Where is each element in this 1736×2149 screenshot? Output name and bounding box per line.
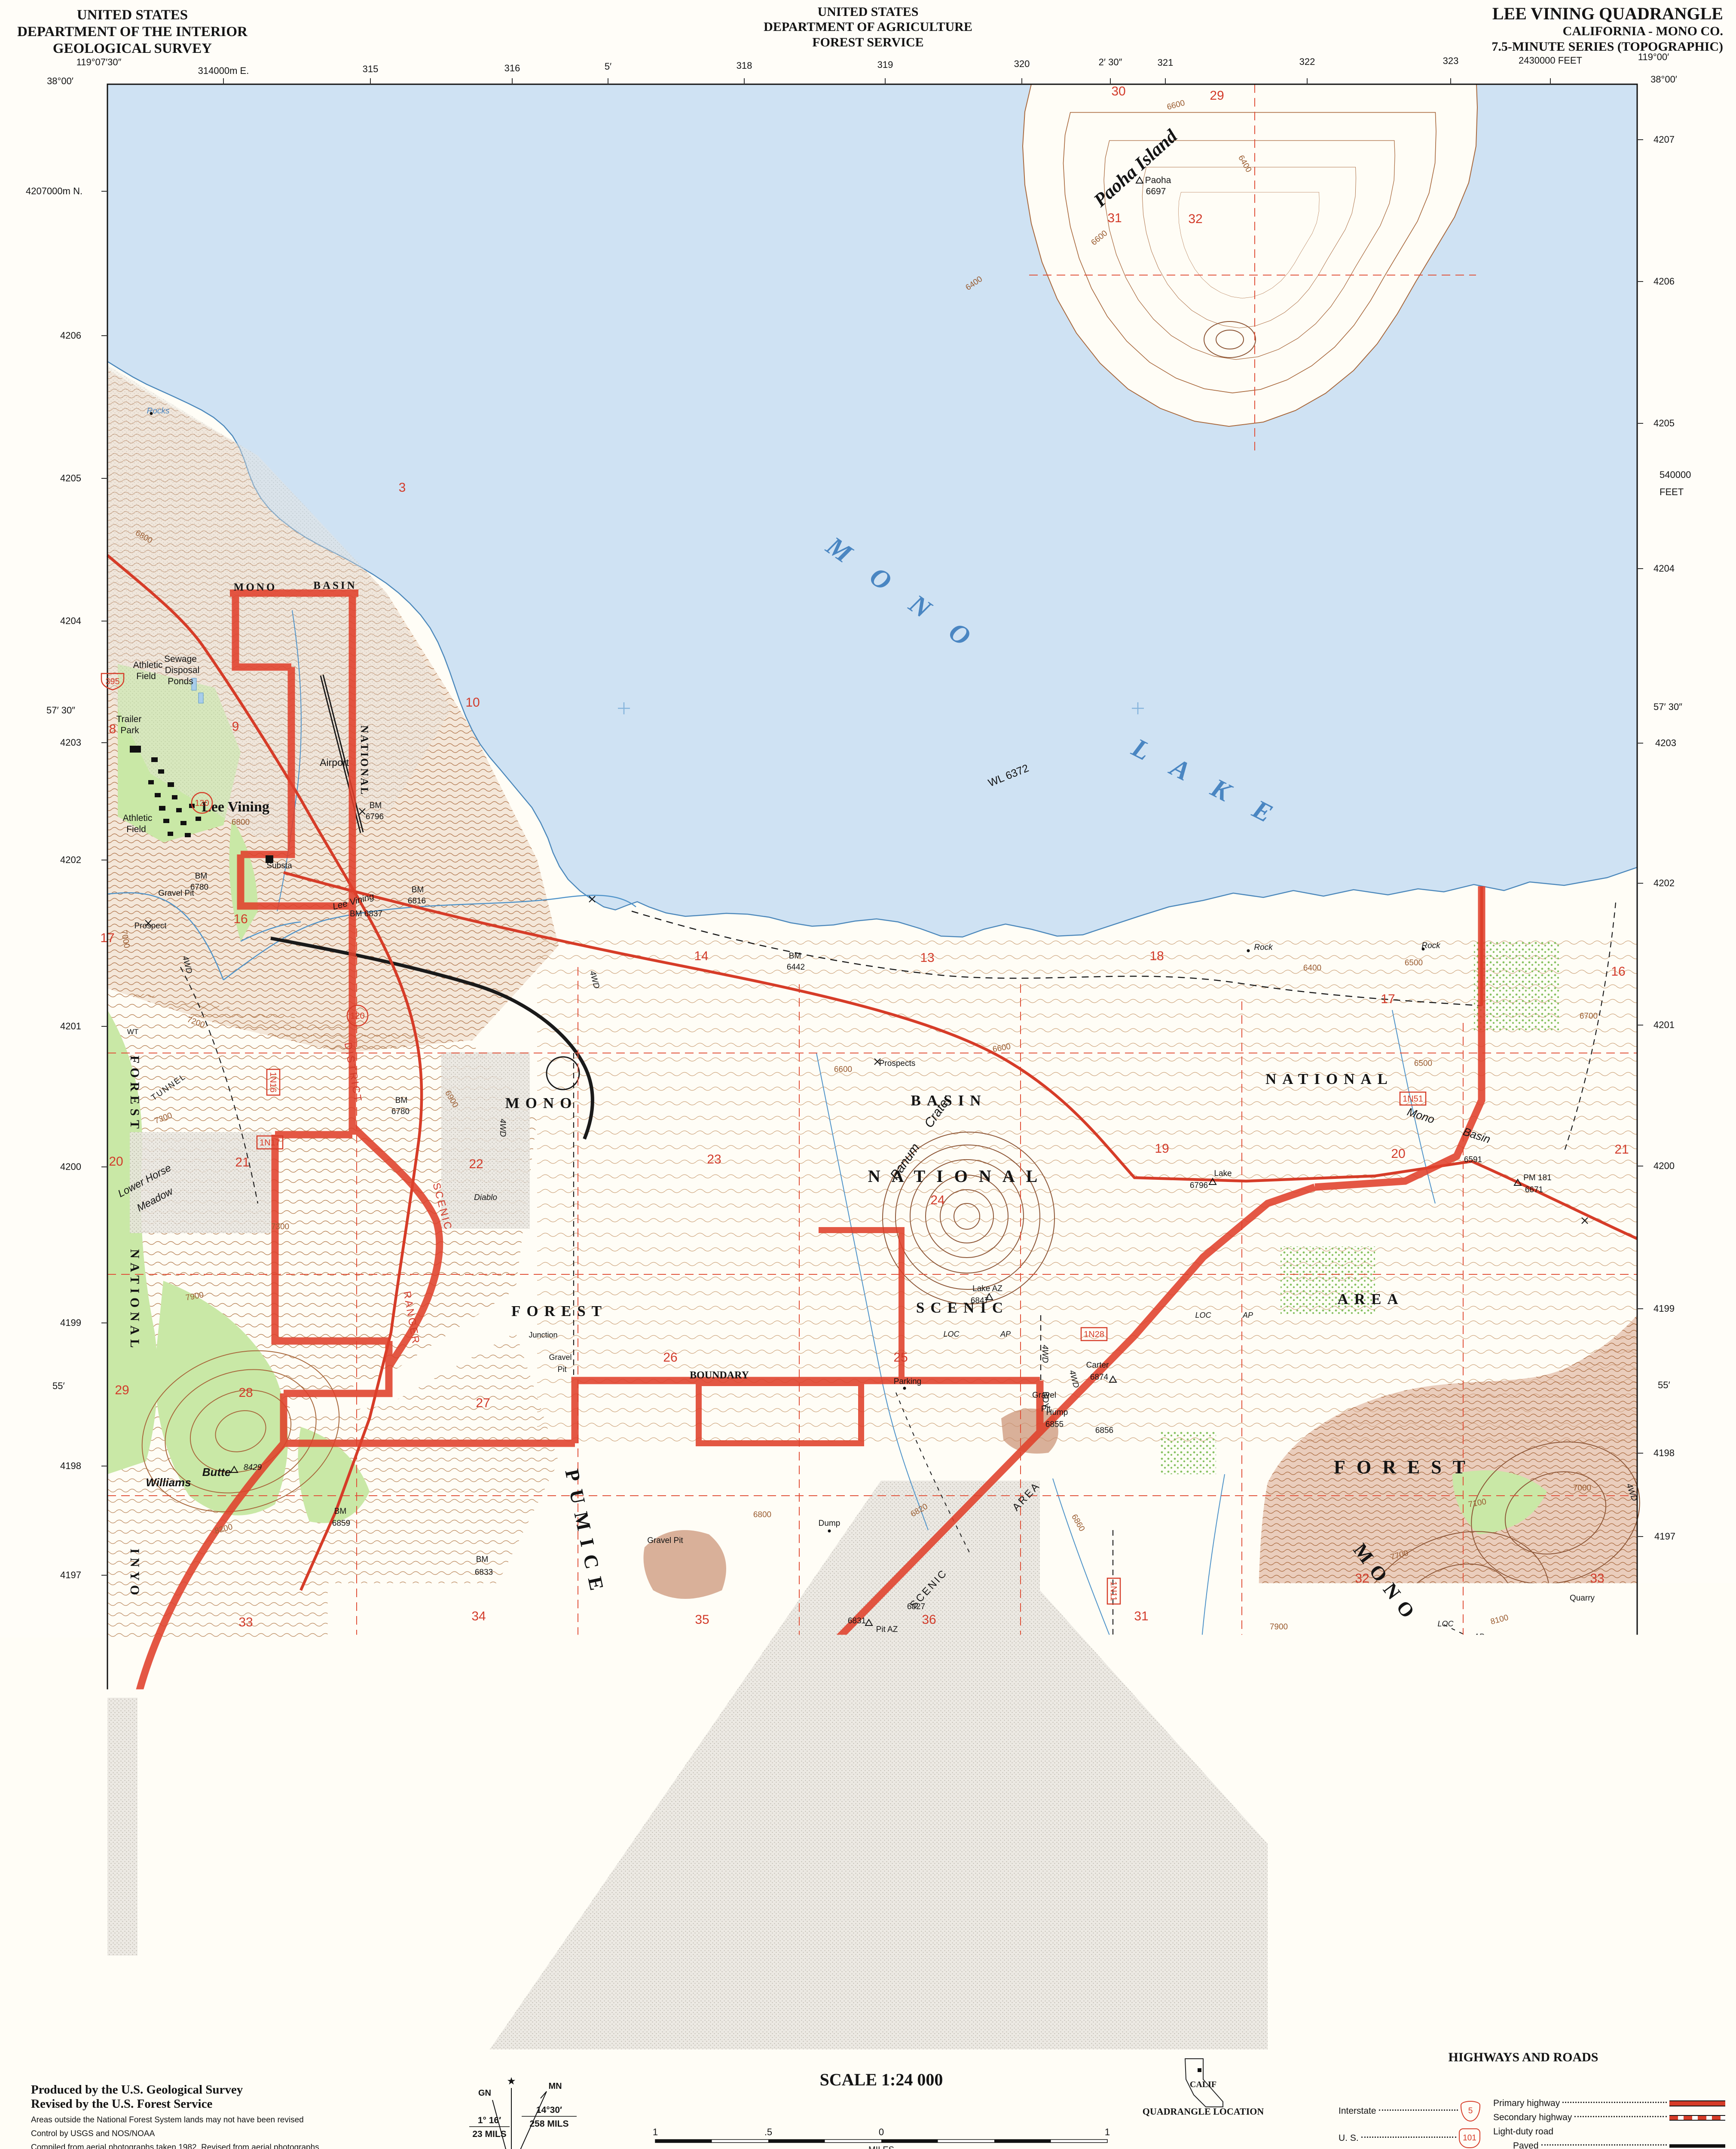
legend-leader-icon xyxy=(1562,2101,1667,2103)
label-ap: AP xyxy=(1242,1311,1253,1319)
label-4201: 4201 xyxy=(1653,1019,1675,1030)
label-7300: 7300 xyxy=(271,1222,289,1231)
spot-dot-icon xyxy=(828,1530,831,1533)
label-318: 318 xyxy=(737,60,752,71)
roads-legend: HIGHWAYS AND ROADS Interstate5U. S.101St… xyxy=(1321,2050,1725,2149)
label-scale-1-24-000: SCALE 1:24 000 xyxy=(820,2070,943,2089)
label-21: 21 xyxy=(1614,1142,1629,1157)
label-junction: Junction xyxy=(529,1331,557,1339)
quadrangle-location: CALIFQUADRANGLE LOCATION xyxy=(1143,2059,1264,2117)
label-loc: LOC xyxy=(943,1330,960,1338)
label-feet: FEET xyxy=(1660,487,1684,497)
label-field: Field xyxy=(126,824,146,834)
route-shield-1n17: 1N17 xyxy=(257,1136,283,1149)
label-35: 35 xyxy=(695,1613,709,1627)
label-diablo: Diablo xyxy=(474,1193,497,1202)
label-athletic: Athletic xyxy=(133,660,163,670)
label-4wd: 4WD xyxy=(498,1119,507,1137)
label-wt: WT xyxy=(127,1028,138,1036)
legend-row-u-s: U. S.101 xyxy=(1339,2128,1480,2148)
legend-leader-icon xyxy=(1574,2115,1667,2117)
label-2-30: 2′ 30″ xyxy=(1124,2049,1147,2060)
legend-label: Secondary highway xyxy=(1493,2112,1572,2123)
label-bm: BM xyxy=(195,872,208,881)
label-mn: MN xyxy=(548,2082,562,2091)
label-14: 14 xyxy=(694,949,708,963)
label-t-1-n: T. 1 N. xyxy=(56,1709,83,1720)
label-ap: AP xyxy=(1473,1632,1484,1641)
label-sewage-disposal: Sewage Disposal xyxy=(526,1996,590,2005)
label-airport: Airport xyxy=(320,757,349,768)
label-forest: FOREST xyxy=(128,1056,142,1133)
route-shield-1n11: 1N11 xyxy=(1107,1578,1120,1604)
route-number: 1N28 xyxy=(1084,1330,1104,1339)
label-4200: 4200 xyxy=(1653,1160,1675,1171)
label-18: 18 xyxy=(1149,949,1164,963)
legend-title: HIGHWAYS AND ROADS xyxy=(1321,2050,1725,2065)
label-23-mils: 23 MILS xyxy=(472,2129,506,2139)
label-r-26-e: R. 26 E. xyxy=(1017,2033,1048,2042)
label-6835: 6835 xyxy=(746,1666,764,1675)
label-5: .5 xyxy=(764,2127,772,2137)
label-4204: 4204 xyxy=(60,615,81,626)
label-4200: 4200 xyxy=(60,1161,81,1172)
label-6780: 6780 xyxy=(190,883,208,892)
label-r-27-e: R. 27 E. xyxy=(1064,2033,1095,2042)
label-37-52-30: 37°52′ 30″ xyxy=(46,2051,89,2062)
label-lake-az: Lake AZ xyxy=(972,1284,1002,1293)
label-isbn-0-607-88156-9: ISBN 0-607-88156-9 xyxy=(1724,1807,1733,1878)
label-9: 9 xyxy=(252,1989,259,2003)
label-6500: 6500 xyxy=(1414,1059,1432,1068)
label-prospects: Prospects xyxy=(879,1059,915,1068)
label-6697: 6697 xyxy=(1146,187,1166,196)
credit-line: Revised by the U.S. Forest Service xyxy=(31,2097,469,2111)
label-6831: 6831 xyxy=(848,1616,866,1626)
label-forest: FOREST xyxy=(1334,1457,1476,1478)
label-6874: 6874 xyxy=(1090,1373,1109,1382)
label-27: 27 xyxy=(476,1396,490,1410)
label-119-07-30: 119°07′ 30″ xyxy=(95,2068,143,2079)
label-calif: CALIF xyxy=(1190,2080,1216,2089)
label-field: Field xyxy=(136,671,156,681)
label-6442: 6442 xyxy=(787,963,805,972)
label-substa: Substa xyxy=(266,861,292,870)
label-26: 26 xyxy=(663,1350,677,1365)
label-ap: AP xyxy=(1623,1687,1634,1695)
spot-dot-icon xyxy=(150,412,153,415)
label-22: 22 xyxy=(469,1157,483,1171)
label-loc: LOC xyxy=(1507,1651,1523,1659)
label-319: 319 xyxy=(938,2050,954,2061)
quad-location-marker-icon xyxy=(1198,2068,1201,2072)
label-4204: 4204 xyxy=(1653,563,1675,574)
label-10: 10 xyxy=(465,695,480,710)
label-4wd: 4WD xyxy=(1278,1858,1296,1867)
label-6780: 6780 xyxy=(391,1107,410,1116)
label-7400: 7400 xyxy=(1363,1660,1381,1669)
label-2400000-feet: 2400000 FEET xyxy=(248,2054,312,2065)
label-parking: Parking xyxy=(894,1377,921,1386)
label-butte: Butte xyxy=(202,1466,231,1479)
label-4203: 4203 xyxy=(1655,738,1676,748)
label-4wd: 4WD xyxy=(1040,1345,1049,1363)
label-mono-9172: Mono 9172 xyxy=(1575,1871,1616,1880)
legend-label: U. S. xyxy=(1339,2133,1359,2143)
legend-label: Interstate xyxy=(1339,2106,1376,2116)
label-38-00: 38°00′ xyxy=(1650,74,1677,85)
label-4206: 4206 xyxy=(60,330,81,341)
label-4202: 4202 xyxy=(1653,878,1675,888)
label-10: 10 xyxy=(473,1993,487,2007)
label-5: 5′ xyxy=(620,2052,627,2063)
us-route-shield-icon: 101 xyxy=(1459,2128,1480,2148)
label-athletic: Athletic xyxy=(123,813,153,823)
label-carter: Carter xyxy=(1086,1361,1109,1370)
label-9: 9 xyxy=(1578,1906,1585,1920)
label-6855: 6855 xyxy=(1045,1420,1064,1429)
label-33: 33 xyxy=(238,1615,253,1629)
label-510000: 510000 xyxy=(55,1749,86,1760)
label-rock: Rock xyxy=(1254,943,1273,952)
label-base: BASE xyxy=(571,1734,596,1745)
label-4203: 4203 xyxy=(60,737,81,748)
header-line: UNITED STATES xyxy=(12,7,253,24)
label-9: 9 xyxy=(232,719,239,734)
label-11: 11 xyxy=(712,1976,726,1990)
label-gravel-pit: Gravel Pit xyxy=(158,889,194,898)
label-4194: 4194 xyxy=(60,1965,81,1976)
label-6: 6 xyxy=(1150,1796,1157,1810)
label-16: 16 xyxy=(1611,964,1625,979)
label-20: 20 xyxy=(109,1154,123,1169)
label-316: 316 xyxy=(504,63,520,73)
secondary-symbol-icon xyxy=(1669,2115,1725,2121)
label-7000: 7000 xyxy=(1573,1484,1591,1493)
quadrangle-title: LEE VINING QUADRANGLE xyxy=(1341,3,1723,24)
label-quarry: Quarry xyxy=(1570,1594,1595,1603)
label-ap: AP xyxy=(1530,1711,1541,1719)
label-quadrangle-location: QUADRANGLE LOCATION xyxy=(1143,2106,1264,2117)
label-basin: BASIN xyxy=(313,580,357,591)
label-bm: BM xyxy=(370,801,382,810)
legend-row-interstate: Interstate5 xyxy=(1339,2101,1480,2121)
label-1-16: 1° 16′ xyxy=(478,2115,501,2125)
label-boundary: BOUNDARY xyxy=(690,1370,749,1381)
header-line: FOREST SERVICE xyxy=(713,35,1023,50)
label-ap: AP xyxy=(1000,1330,1011,1338)
header-quadrangle: LEE VINING QUADRANGLE CALIFORNIA - MONO … xyxy=(1341,3,1723,54)
label-540000: 540000 xyxy=(1660,469,1691,480)
label-lake: Lake xyxy=(1214,1169,1232,1178)
label-6856: 6856 xyxy=(1095,1426,1113,1435)
label-national: NATIONAL xyxy=(128,1249,142,1352)
route-number: 1N16 xyxy=(268,1072,278,1093)
label-6800: 6800 xyxy=(753,1510,771,1519)
label-33: 33 xyxy=(1590,1571,1604,1586)
label-20: 20 xyxy=(1391,1147,1405,1161)
label-4201: 4201 xyxy=(60,1021,81,1032)
label-57-30: 57′ 30″ xyxy=(46,705,75,716)
label-6700: 6700 xyxy=(1580,1012,1598,1021)
label-30: 30 xyxy=(1111,84,1125,98)
label-36: 36 xyxy=(922,1613,936,1627)
route-number: 1N17 xyxy=(260,1138,280,1148)
label-ponds: Ponds xyxy=(535,2010,558,2019)
label-pit: Pit xyxy=(557,1365,566,1374)
header-line: DEPARTMENT OF THE INTERIOR xyxy=(12,24,253,40)
label-6500: 6500 xyxy=(1405,958,1423,967)
label-4207000m-n: 4207000m N. xyxy=(26,186,83,196)
label-trailer: Trailer xyxy=(116,714,142,724)
label-34: 34 xyxy=(471,1609,486,1623)
header-usgs: UNITED STATES DEPARTMENT OF THE INTERIOR… xyxy=(12,7,253,57)
label-2430000-feet: 2430000 FEET xyxy=(1519,55,1582,66)
label-28: 28 xyxy=(238,1386,253,1400)
label-31: 31 xyxy=(1107,211,1122,225)
label-1: 1 xyxy=(1105,2127,1110,2137)
label-32: 32 xyxy=(1188,212,1202,226)
legend-row-paved: Paved xyxy=(1513,2141,1725,2149)
label-12: 12 xyxy=(923,1964,937,1978)
label-321: 321 xyxy=(1274,2048,1290,2059)
label-dump: Dump xyxy=(819,1519,840,1528)
label-319: 319 xyxy=(877,59,893,70)
label-8: 8 xyxy=(1362,1879,1369,1893)
route-number: 395 xyxy=(105,677,119,686)
label-bm: BM xyxy=(476,1555,489,1564)
route-shield-1n16: 1N16 xyxy=(267,1069,280,1095)
label-crater: Crater xyxy=(1564,1887,1598,1900)
label-4wd: 4WD xyxy=(1302,1802,1320,1811)
label-1: 1 xyxy=(892,1766,899,1780)
label-4195: 4195 xyxy=(1655,1766,1676,1777)
label-miles: MILES xyxy=(868,2145,894,2149)
legend-label: Primary highway xyxy=(1493,2098,1560,2109)
legend-leader-icon xyxy=(1379,2109,1458,2111)
label-6600: 6600 xyxy=(834,1065,852,1074)
spot-dot-icon xyxy=(903,1387,906,1390)
map-sheet: M O N OL A K EWL 6372RocksRockRockPaoha … xyxy=(0,0,1736,2149)
label-bm: BM xyxy=(334,1507,347,1516)
legend-leader-icon xyxy=(1541,2144,1667,2146)
legend-leader-icon xyxy=(1361,2136,1456,2138)
label-4205: 4205 xyxy=(1653,418,1675,429)
label-ponds: Ponds xyxy=(168,677,193,686)
label-55: 55′ xyxy=(52,1381,65,1391)
label-4207: 4207 xyxy=(1653,134,1675,145)
label-6816: 6816 xyxy=(408,897,426,906)
label-feet: FEET xyxy=(65,1766,89,1776)
label-national: NATIONAL xyxy=(358,726,370,796)
label-4198: 4198 xyxy=(60,1460,81,1471)
label-forest: FOREST xyxy=(511,1303,608,1319)
label-4: 4 xyxy=(251,1834,258,1848)
label-mono: MONO xyxy=(234,582,277,593)
label-5: 5 xyxy=(1381,1751,1388,1765)
label-4wd: 4WD xyxy=(105,1707,124,1716)
label-6591: 6591 xyxy=(1464,1155,1482,1164)
route-shield-1n51: 1N51 xyxy=(1400,1092,1426,1105)
primary-symbol-icon xyxy=(1669,2100,1725,2106)
label-loc: LOC xyxy=(1578,1676,1595,1685)
label-8429: 8429 xyxy=(244,1463,262,1472)
label-bdy: BDY xyxy=(1041,1391,1050,1408)
label-315: 315 xyxy=(363,64,379,74)
label-6400: 6400 xyxy=(1303,964,1321,973)
route-number: 1N11 xyxy=(1109,1581,1118,1601)
label-7: 7 xyxy=(1151,1972,1158,1986)
spot-dot-icon xyxy=(1422,948,1425,951)
label-8: 8 xyxy=(109,722,116,736)
label-4195: 4195 xyxy=(60,1826,81,1837)
label-119-07-30: 119°07′30″ xyxy=(76,57,122,67)
label-williams: Williams xyxy=(146,1476,191,1489)
label-line: LINE xyxy=(678,1734,699,1745)
credit-line: Control by USGS and NOS/NOAA xyxy=(31,2129,469,2139)
label-park: Park xyxy=(120,726,139,735)
label-4: 4 xyxy=(1578,1748,1585,1762)
label-4199: 4199 xyxy=(60,1317,81,1328)
quadrangle-series: 7.5-MINUTE SERIES (TOPOGRAPHIC) xyxy=(1341,39,1723,54)
label-4197: 4197 xyxy=(60,1570,81,1580)
label-29: 29 xyxy=(115,1383,129,1397)
label-6796: 6796 xyxy=(1190,1181,1208,1190)
label-gravel: Gravel xyxy=(549,1353,572,1362)
label-4205: 4205 xyxy=(60,473,81,484)
label-320: 320 xyxy=(1014,58,1030,69)
label-29: 29 xyxy=(1210,89,1224,103)
label-19: 19 xyxy=(1155,1142,1169,1156)
label-sewage: Sewage xyxy=(164,654,197,664)
label-17: 17 xyxy=(100,931,114,945)
route-number: 1N51 xyxy=(1403,1094,1423,1104)
label-13: 13 xyxy=(920,951,934,965)
label-pit-az: Pit AZ xyxy=(876,1625,898,1634)
label-258-mils: 258 MILS xyxy=(529,2119,568,2129)
label-6859: 6859 xyxy=(332,1519,350,1528)
header-line: UNITED STATES xyxy=(713,4,1023,19)
label-inyo: INYO xyxy=(128,1549,142,1599)
label-6800: 6800 xyxy=(232,818,250,827)
label-6796: 6796 xyxy=(366,812,384,821)
label-mono: MONO xyxy=(505,1095,578,1111)
route-number: 120 xyxy=(195,799,209,808)
label-national: NATIONAL xyxy=(1265,1071,1394,1087)
label-gn: GN xyxy=(478,2088,491,2098)
label-hump: Hump xyxy=(1046,1408,1068,1417)
label-6833: 6833 xyxy=(475,1568,493,1577)
credit-line: Compiled from aerial photographs taken 1… xyxy=(31,2143,469,2149)
label-24: 24 xyxy=(930,1193,944,1207)
label-3: 3 xyxy=(399,481,406,495)
spot-dot-icon xyxy=(1247,949,1250,952)
label-mtn: Mtn xyxy=(1614,1887,1634,1900)
label-317: 317 xyxy=(689,2052,705,2063)
legend-label: Paved xyxy=(1513,2141,1539,2149)
route-number: 120 xyxy=(350,1011,364,1021)
label-bm: BM xyxy=(395,1096,408,1105)
label-t-1-n: T. 1 N. xyxy=(1655,1655,1683,1665)
label-318: 318 xyxy=(791,2051,807,2062)
label-6847: 6847 xyxy=(971,1296,989,1305)
label-gravel-pit: Gravel Pit xyxy=(647,1536,683,1545)
label-2: 2 xyxy=(703,1820,710,1834)
credits-block: Produced by the U.S. Geological SurveyRe… xyxy=(31,2083,469,2149)
legend-row-secondary-highway: Secondary highway xyxy=(1493,2112,1725,2123)
label-bm-6837: BM 6837 xyxy=(350,909,382,918)
label-4198: 4198 xyxy=(1653,1448,1675,1458)
label-2-30: 2′ 30″ xyxy=(1099,57,1122,67)
label-4202: 4202 xyxy=(60,854,81,865)
label-38-00: 38°00′ xyxy=(47,76,73,86)
label-6671: 6671 xyxy=(1525,1185,1543,1194)
label-25: 25 xyxy=(893,1350,908,1365)
label-scenic: SCENIC xyxy=(916,1299,1009,1316)
label-4199: 4199 xyxy=(1653,1303,1675,1314)
label-t-1-s: T. 1 S. xyxy=(56,1729,83,1739)
label-pm-181: PM 181 xyxy=(1523,1173,1551,1182)
label-4194000m-n: 4194000m N. xyxy=(1653,1877,1710,1887)
label-bm: BM xyxy=(789,952,801,961)
label-pit: Pit xyxy=(775,1654,785,1663)
label-17: 17 xyxy=(1381,992,1395,1006)
label-4206: 4206 xyxy=(1653,276,1675,287)
label-disposal: Disposal xyxy=(165,665,200,675)
paved-symbol-icon xyxy=(1669,2144,1725,2148)
label-322: 322 xyxy=(1299,56,1315,67)
label-paoha: Paoha xyxy=(1145,175,1171,185)
map-svg: M O N OL A K EWL 6372RocksRockRockPaoha … xyxy=(0,0,1736,2149)
label-t-1-s: T. 1 S. xyxy=(1655,1675,1682,1686)
label-1: 1 xyxy=(653,2127,658,2137)
header-line: GEOLOGICAL SURVEY xyxy=(12,40,253,57)
label-31: 31 xyxy=(1134,1609,1148,1623)
legend-label: Light-duty road xyxy=(1493,2127,1553,2137)
label-32: 32 xyxy=(1355,1571,1369,1586)
label-14-30: 14°30′ xyxy=(536,2105,562,2115)
legend-row-primary-highway: Primary highway xyxy=(1493,2098,1725,2109)
credit-line: Areas outside the National Forest System… xyxy=(31,2115,469,2125)
label-7900: 7900 xyxy=(1270,1622,1288,1632)
header-usda: UNITED STATES DEPARTMENT OF AGRICULTURE … xyxy=(713,4,1023,50)
label-55: 55′ xyxy=(1658,1380,1670,1390)
label-loc: LOC xyxy=(1507,1774,1523,1783)
label-315: 315 xyxy=(469,2053,485,2063)
quadrangle-state: CALIFORNIA - MONO CO. xyxy=(1341,24,1723,39)
credit-line: Produced by the U.S. Geological Survey xyxy=(31,2083,469,2097)
legend-row-light-duty-road: Light-duty road xyxy=(1493,2127,1725,2137)
label-loc: LOC xyxy=(1437,1619,1454,1628)
label-bm: BM xyxy=(412,885,424,894)
label-57-30: 57′ 30″ xyxy=(1653,701,1682,712)
interstate-shield-icon: 5 xyxy=(1461,2101,1480,2121)
label-loc: LOC xyxy=(1195,1311,1211,1319)
label-0: 0 xyxy=(879,2127,884,2137)
label-5: 5′ xyxy=(605,61,611,72)
label-323: 323 xyxy=(1443,55,1459,66)
label-314000m-e: 314000m E. xyxy=(198,65,249,76)
label-21: 21 xyxy=(235,1155,249,1169)
label-23: 23 xyxy=(707,1152,721,1166)
label-4197: 4197 xyxy=(1654,1531,1675,1542)
label-area: AREA xyxy=(1337,1291,1404,1307)
header-line: DEPARTMENT OF AGRICULTURE xyxy=(713,19,1023,34)
label-16: 16 xyxy=(233,912,248,926)
label-321: 321 xyxy=(1158,57,1174,68)
label-: ★ xyxy=(507,2076,516,2087)
route-shield-1n28: 1N28 xyxy=(1081,1328,1107,1341)
